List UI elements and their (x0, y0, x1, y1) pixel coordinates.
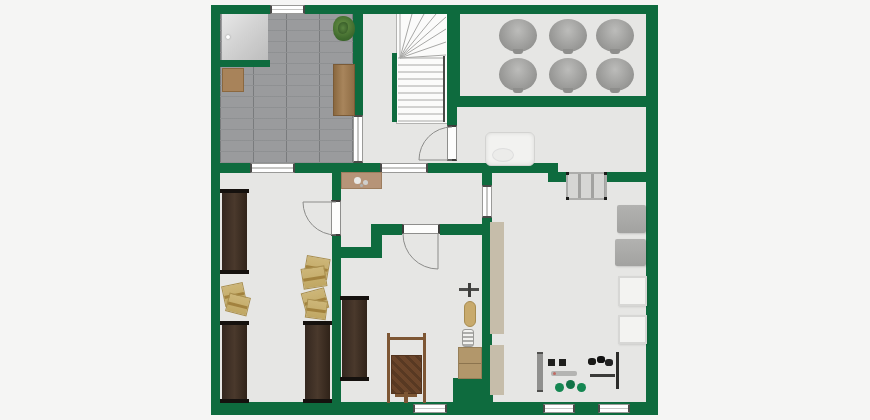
top-window[interactable] (270, 5, 305, 14)
workshop-top-wall-a (382, 224, 402, 235)
storage-tank-3[interactable] (596, 19, 634, 52)
workshop-door-frame[interactable] (402, 224, 440, 234)
workshop-top-wall-b (440, 224, 492, 235)
entry-storage-unit[interactable] (222, 14, 268, 60)
gray-table-2[interactable] (615, 239, 646, 266)
storage-door-frame[interactable] (331, 200, 341, 236)
white-table-2[interactable] (618, 315, 647, 344)
bottom-window-3[interactable] (598, 404, 630, 413)
wall-bench-1[interactable] (222, 190, 247, 273)
chimney-duct-2[interactable] (490, 345, 504, 395)
storage-tank-5[interactable] (549, 58, 587, 91)
workshop-cabinet[interactable] (458, 347, 482, 379)
sled-crossbar[interactable] (389, 337, 424, 340)
gym-bar-rack[interactable] (537, 352, 543, 392)
interior-window-storage[interactable] (250, 163, 295, 173)
storage-tank-1[interactable] (499, 19, 537, 52)
wall-tool[interactable] (464, 301, 476, 327)
chimney-duct-1[interactable] (490, 222, 504, 334)
boiler-appliance[interactable] (485, 132, 535, 166)
passage-opening[interactable] (482, 185, 492, 218)
storage-tank-2[interactable] (549, 19, 587, 52)
mid-wall-step (548, 163, 558, 182)
bottom-window-1[interactable] (413, 404, 447, 413)
spring-coil[interactable] (462, 329, 474, 347)
potted-plant[interactable] (333, 16, 355, 41)
stair-stub-wall (392, 53, 397, 122)
gym-bar[interactable] (590, 374, 615, 377)
workshop-corner-wall (453, 378, 493, 404)
white-table-1[interactable] (618, 276, 647, 306)
interior-window-hall[interactable] (380, 163, 428, 173)
wall-bench-3[interactable] (305, 322, 330, 402)
closet-wall (220, 60, 270, 67)
stair-tankroom-wall (447, 14, 460, 107)
entry-table[interactable] (333, 64, 355, 116)
tankroom-bottom-wall (447, 96, 646, 107)
weight-plates[interactable] (588, 356, 614, 367)
wall-tool-rack[interactable] (459, 283, 479, 297)
floorplan-canvas (0, 0, 870, 420)
storage-wall-upper (332, 173, 341, 200)
winder-staircase[interactable] (396, 12, 448, 124)
wall-bench-4[interactable] (342, 297, 367, 380)
storage-tank-4[interactable] (499, 58, 537, 91)
stair-boiler-wall (447, 107, 457, 125)
storage-box-6[interactable] (305, 299, 328, 321)
interior-window-entrance[interactable] (353, 115, 363, 163)
hall-shelf[interactable] (341, 172, 382, 189)
storage-box-4[interactable] (301, 265, 328, 289)
mid-wall-a (220, 163, 250, 173)
wall-bench-2[interactable] (222, 322, 247, 402)
barbell[interactable] (551, 371, 577, 376)
boiler-door-frame[interactable] (447, 125, 457, 161)
hall-right-wall-upper (482, 163, 492, 185)
entry-cabinet[interactable] (222, 68, 244, 92)
gym-rail[interactable] (616, 352, 619, 389)
workshop-step-wall-h (332, 247, 373, 258)
floor-grate[interactable] (566, 172, 607, 200)
outer-wall-left (211, 5, 220, 415)
workshop-step-wall-v (371, 224, 382, 258)
bottom-window-2[interactable] (543, 404, 575, 413)
gray-table-1[interactable] (617, 205, 646, 233)
storage-tank-6[interactable] (596, 58, 634, 91)
sled-footbar[interactable] (395, 394, 417, 397)
dumbbells[interactable] (548, 359, 568, 366)
outer-wall-right (646, 5, 658, 415)
kettlebells[interactable] (553, 379, 587, 394)
